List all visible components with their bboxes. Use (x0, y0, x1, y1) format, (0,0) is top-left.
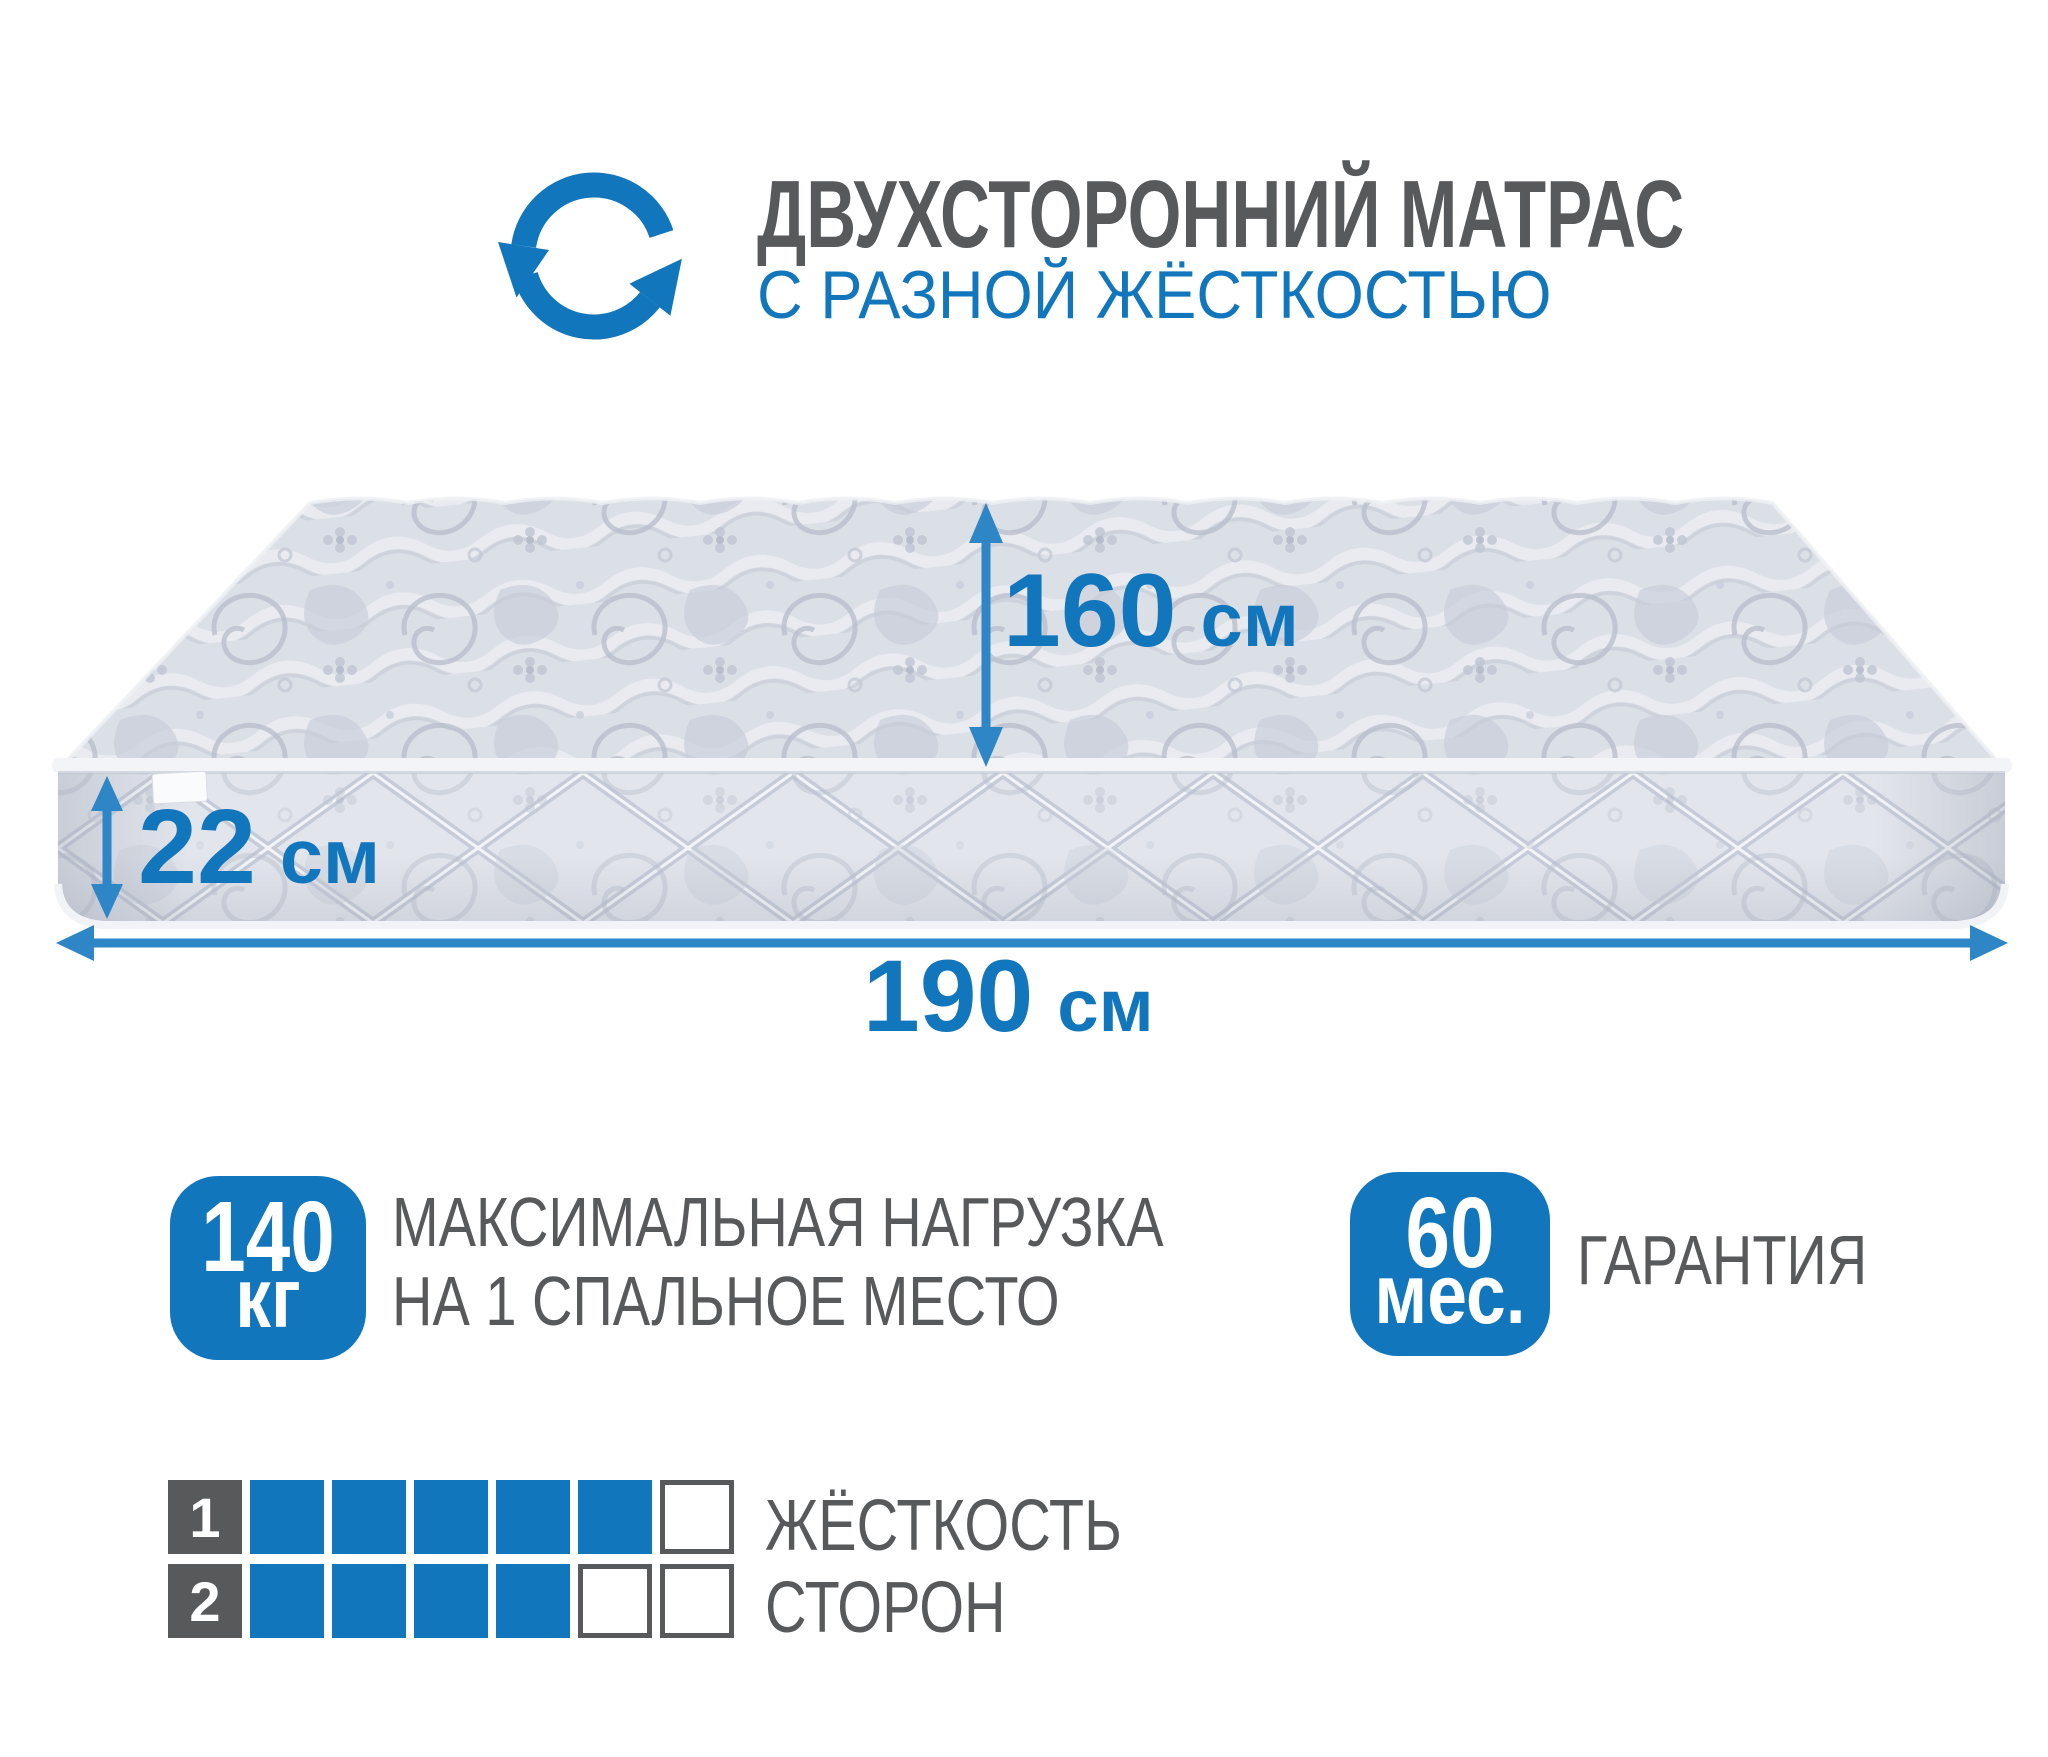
firmness-cell-filled (414, 1480, 488, 1554)
title-line1: ДВУХСТОРОННИЙ МАТРАС (757, 167, 1684, 263)
firmness-cell-filled (414, 1564, 488, 1638)
firmness-row: 2 (168, 1564, 734, 1638)
warranty-unit: мес. (1365, 1252, 1535, 1336)
mattress-infographic: ДВУХСТОРОННИЙ МАТРАС С РАЗНОЙ ЖЁСТКОСТЬЮ (0, 0, 2048, 1757)
mattress-illustration (0, 440, 2048, 1020)
firmness-caption-line1: ЖЁСТКОСТЬ (765, 1485, 1122, 1567)
dimension-length-label: 190см (863, 945, 1154, 1047)
dimension-height-value: 22 (138, 788, 256, 906)
dimension-length-unit: см (1057, 964, 1153, 1047)
firmness-cell-filled (332, 1564, 406, 1638)
firmness-cell-empty (578, 1564, 652, 1638)
dimension-length-value: 190 (863, 939, 1033, 1053)
max-load-caption-line2: НА 1 СПАЛЬНОЕ МЕСТО (392, 1262, 1164, 1341)
max-load-badge: 140 кг (170, 1176, 366, 1360)
max-load-caption: МАКСИМАЛЬНАЯ НАГРУЗКА НА 1 СПАЛЬНОЕ МЕСТ… (392, 1183, 1164, 1341)
dimension-height-label: 22см (138, 794, 380, 900)
firmness-cell-filled (250, 1564, 324, 1638)
firmness-caption-line2: СТОРОН (765, 1567, 1122, 1649)
firmness-row: 1 (168, 1480, 734, 1554)
max-load-unit: кг (185, 1256, 352, 1340)
firmness-cell-filled (496, 1480, 570, 1554)
warranty-badge: 60 мес. (1350, 1172, 1550, 1356)
firmness-caption: ЖЁСТКОСТЬ СТОРОН (765, 1485, 1122, 1649)
firmness-scale: 12 (168, 1480, 734, 1638)
dimension-width-label: 160см (1003, 559, 1299, 663)
firmness-cell-filled (250, 1480, 324, 1554)
firmness-row-number: 2 (168, 1564, 242, 1638)
dimension-width-value: 160 (1003, 553, 1177, 669)
firmness-cell-empty (660, 1480, 734, 1554)
firmness-cell-empty (660, 1564, 734, 1638)
firmness-cell-filled (332, 1480, 406, 1554)
max-load-caption-line1: МАКСИМАЛЬНАЯ НАГРУЗКА (392, 1183, 1164, 1262)
rotate-arrows-icon (497, 160, 732, 370)
warranty-caption: ГАРАНТИЯ (1577, 1221, 1867, 1300)
dimension-width-unit: см (1201, 578, 1299, 663)
firmness-row-number: 1 (168, 1480, 242, 1554)
title-line2: С РАЗНОЙ ЖЁСТКОСТЬЮ (757, 261, 1551, 329)
firmness-cell-filled (496, 1564, 570, 1638)
mattress-top-piping (52, 758, 2012, 773)
firmness-cell-filled (578, 1480, 652, 1554)
dimension-height-unit: см (280, 814, 380, 900)
